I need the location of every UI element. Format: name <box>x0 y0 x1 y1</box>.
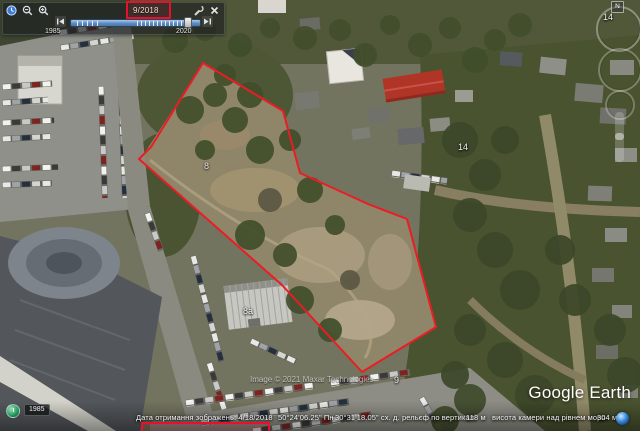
google-earth-watermark: Google Earth <box>528 383 631 403</box>
camera-altitude-label: висота камери над рівнем моря <box>492 413 606 422</box>
timeline-handle[interactable] <box>184 17 192 28</box>
latitude-readout: 50°24'06.25" Пн <box>278 413 334 422</box>
timeline-track[interactable] <box>70 19 201 27</box>
zoom-out-icon[interactable] <box>22 5 33 16</box>
step-forward-button[interactable] <box>202 16 213 27</box>
time-slider-panel: 9/2018 1985 2020 <box>2 2 225 35</box>
selected-date: 9/2018 <box>133 6 159 15</box>
history-clock-icon[interactable] <box>6 404 20 418</box>
compass-north-label[interactable]: N <box>611 1 624 13</box>
settings-wrench-icon[interactable] <box>193 5 204 16</box>
satellite-imagery[interactable] <box>0 0 640 431</box>
zoom-slider[interactable] <box>615 112 624 162</box>
elevation-label: рельєф по вертикалі <box>402 413 476 422</box>
elevation-value: 118 м <box>466 413 486 422</box>
camera-altitude-value: 304 м <box>597 413 617 422</box>
history-year-badge: 1985 <box>24 404 50 416</box>
step-back-button[interactable] <box>55 16 66 27</box>
zoom-slider-handle[interactable] <box>615 133 624 140</box>
timeline-ticks-recent <box>137 21 189 26</box>
range-end-year: 2020 <box>176 28 192 35</box>
longitude-readout: 30°31'18.05" сх. д. <box>335 413 400 422</box>
google-earth-window: 8 14 8а 9 14 N 9/2018 <box>0 0 640 431</box>
streaming-indicator-icon <box>616 412 629 425</box>
look-joystick[interactable] <box>598 48 640 92</box>
imagery-credit: Image © 2021 Maxar Technologies <box>250 375 374 384</box>
range-start-year: 1985 <box>45 28 61 35</box>
timeline-ticks-early <box>77 21 99 26</box>
imagery-date-text: Дата отримання зображень: 4/18/2018 <box>136 413 273 422</box>
clock-icon[interactable] <box>6 5 17 16</box>
close-icon[interactable] <box>209 5 220 16</box>
zoom-in-icon[interactable] <box>38 5 49 16</box>
